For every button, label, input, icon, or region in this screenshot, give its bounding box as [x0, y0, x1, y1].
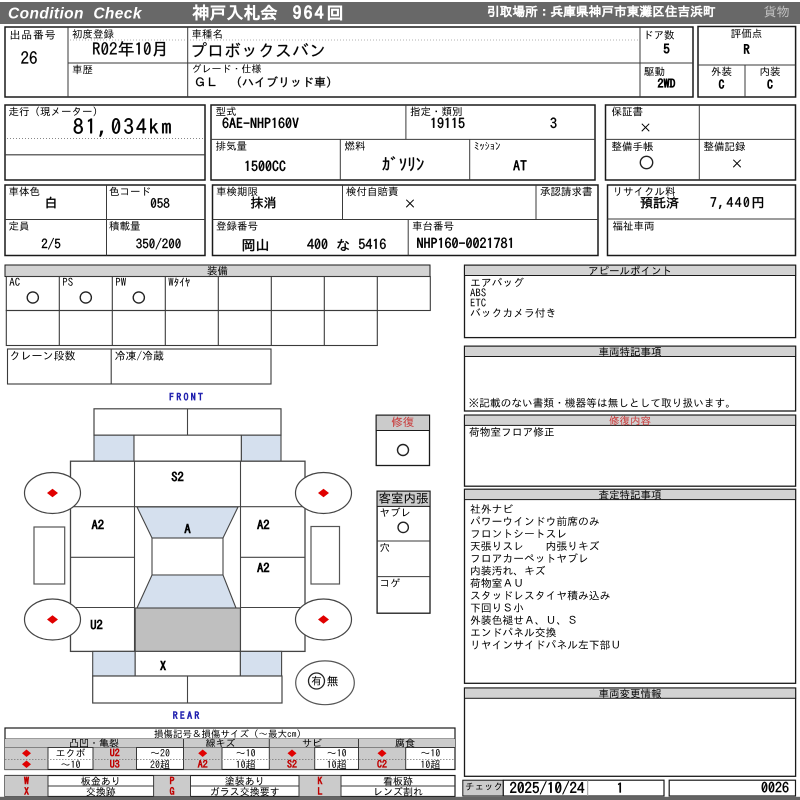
svg-text:Condition Check: Condition Check — [8, 6, 143, 23]
